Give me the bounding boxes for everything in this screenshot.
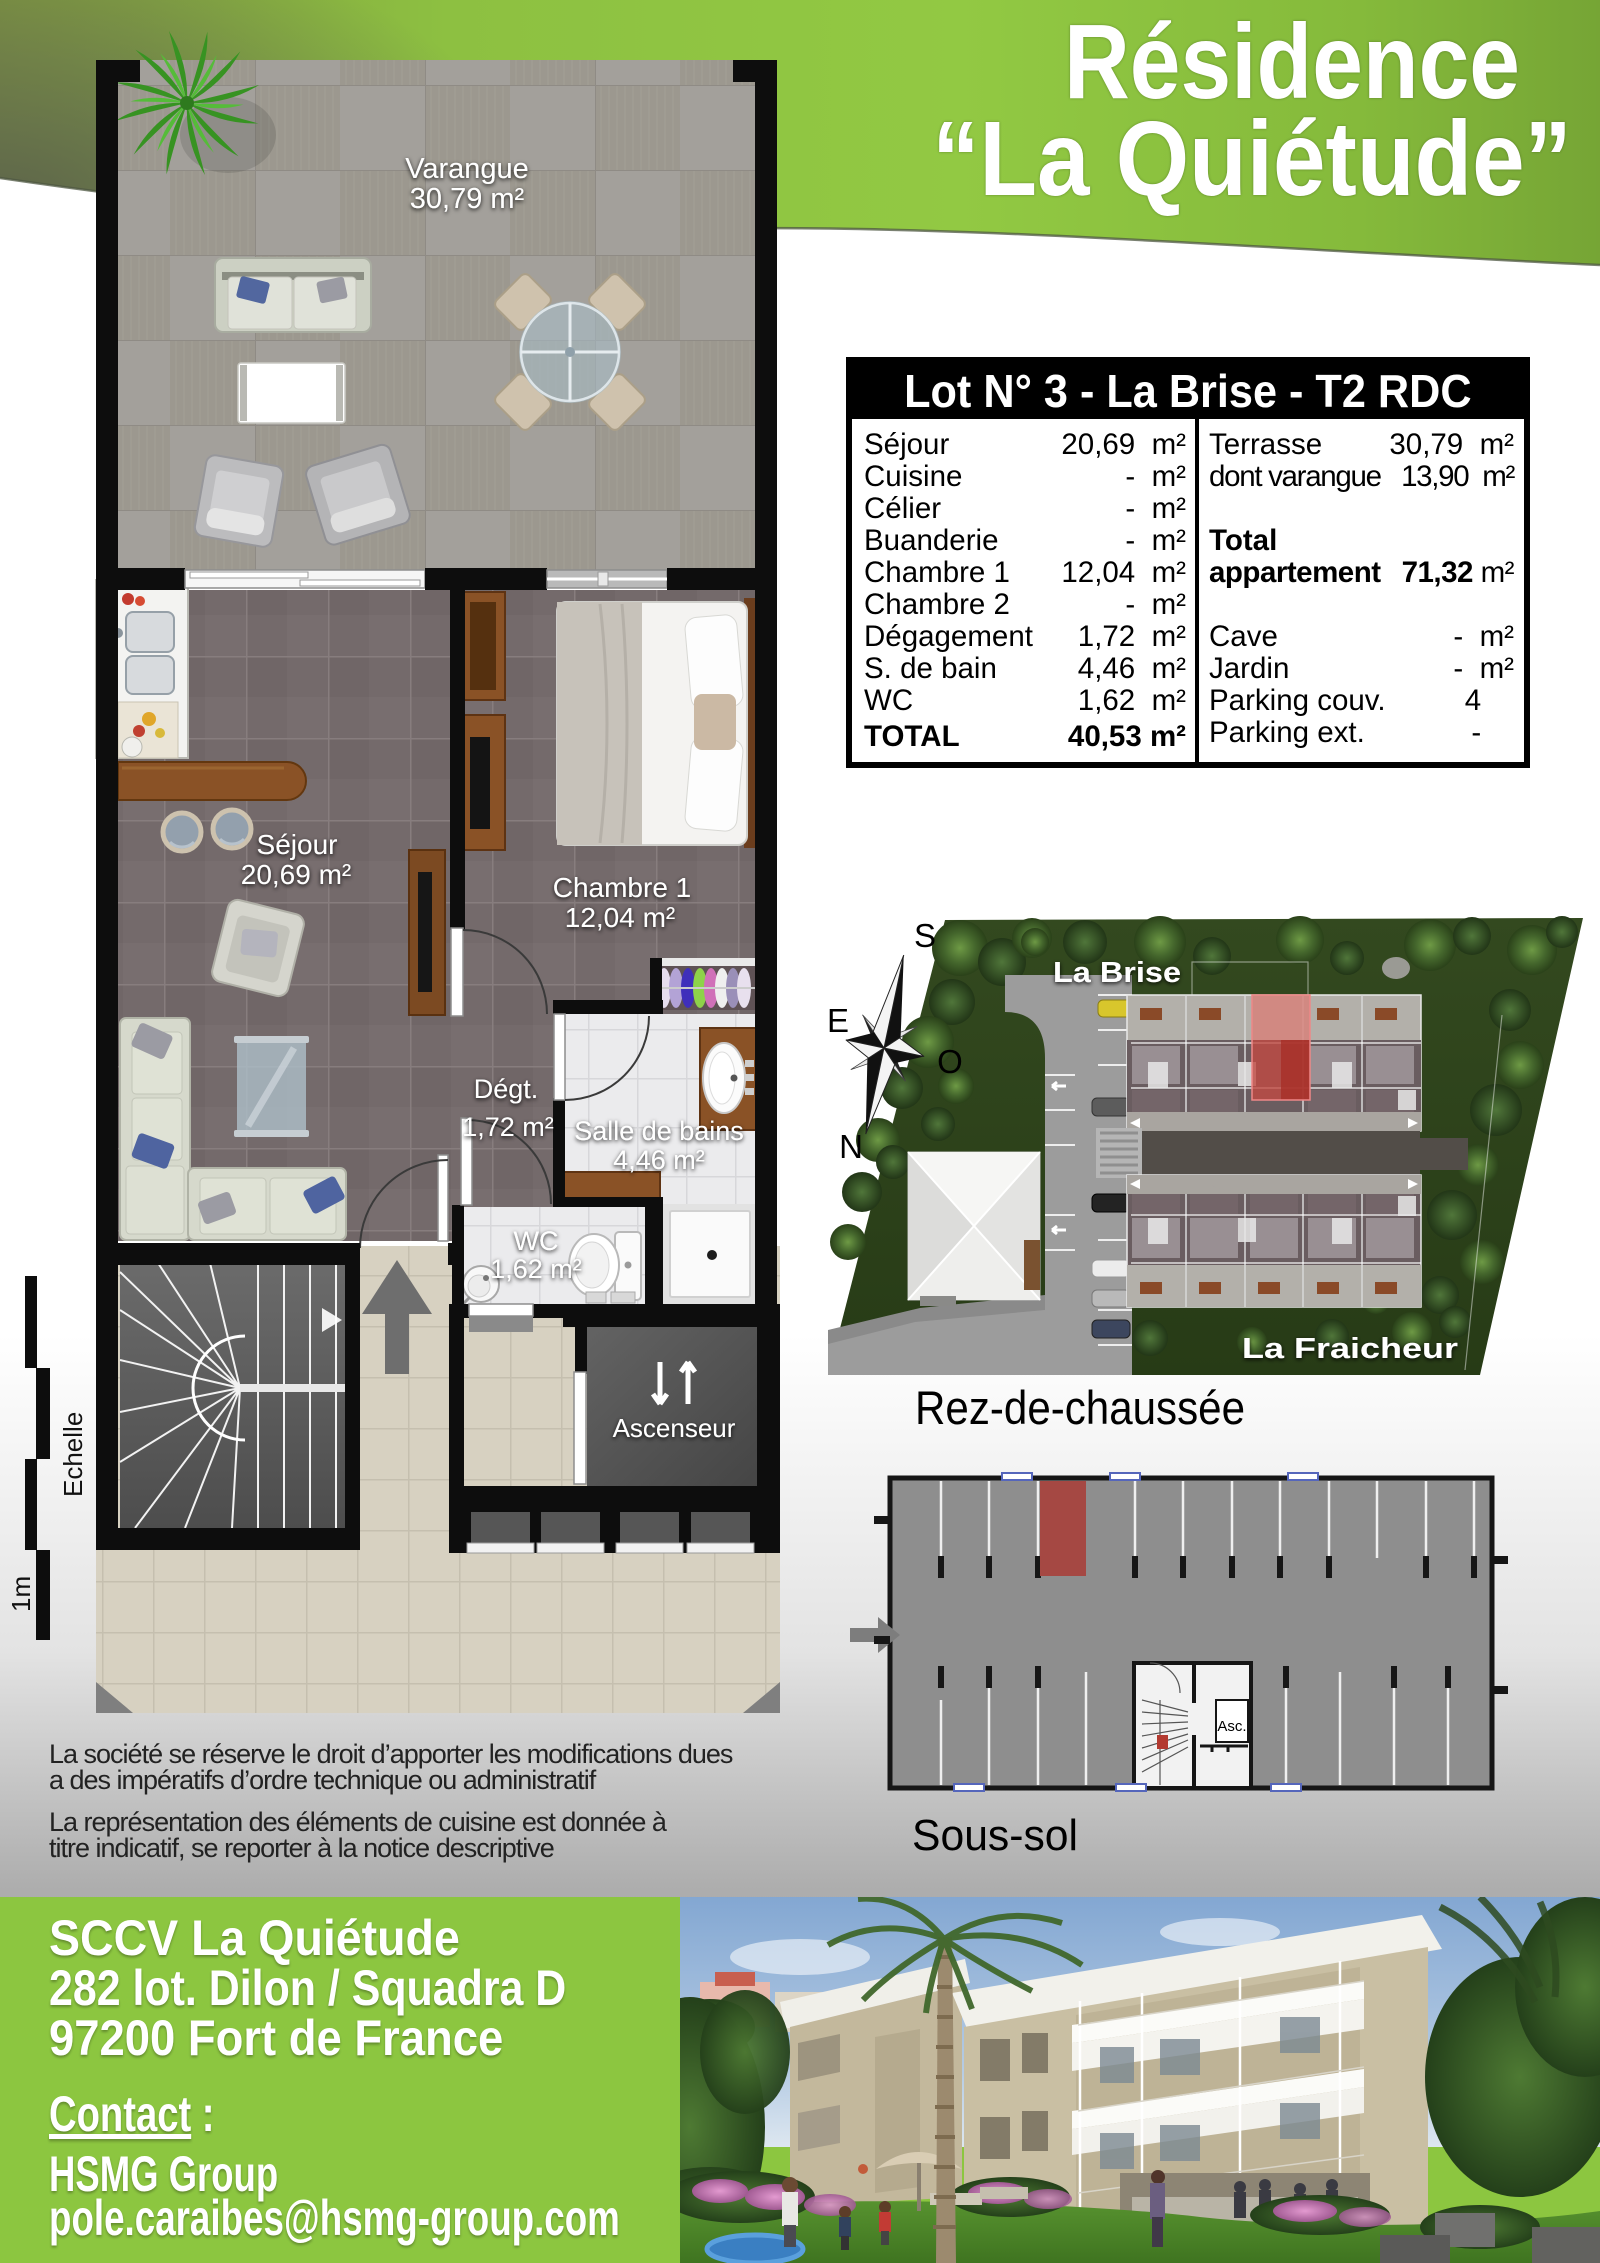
svg-text:12,04 m²: 12,04 m² xyxy=(565,902,676,933)
svg-text:E: E xyxy=(827,1002,849,1039)
svg-text:Chambre 1: Chambre 1 xyxy=(553,872,692,903)
svg-text:Sous-sol: Sous-sol xyxy=(912,1811,1078,1860)
svg-text:30,79 m²: 30,79 m² xyxy=(410,183,525,215)
svg-text:1m: 1m xyxy=(6,1576,36,1612)
svg-text:La Brise: La Brise xyxy=(1053,957,1181,989)
svg-text:N: N xyxy=(839,1128,863,1165)
svg-text:Ascenseur: Ascenseur xyxy=(613,1413,736,1443)
svg-text:Asc.: Asc. xyxy=(1217,1718,1246,1735)
svg-text:Rez-de-chaussée: Rez-de-chaussée xyxy=(915,1381,1245,1434)
svg-text:Echelle: Echelle xyxy=(58,1412,88,1497)
svg-text:S: S xyxy=(914,917,936,954)
svg-text:Dégt.: Dégt. xyxy=(474,1074,539,1104)
svg-text:Varangue: Varangue xyxy=(405,153,529,185)
svg-text:20,69 m²: 20,69 m² xyxy=(241,859,352,890)
svg-text:1,72 m²: 1,72 m² xyxy=(462,1112,554,1142)
svg-text:O: O xyxy=(937,1043,963,1080)
svg-text:Salle de bains: Salle de bains xyxy=(574,1116,744,1146)
svg-text:WC: WC xyxy=(514,1226,559,1256)
svg-text:1,62 m²: 1,62 m² xyxy=(490,1254,582,1284)
svg-text:La Fraicheur: La Fraicheur xyxy=(1242,1333,1458,1365)
svg-text:Séjour: Séjour xyxy=(257,829,338,860)
svg-text:4,46 m²: 4,46 m² xyxy=(613,1145,705,1175)
